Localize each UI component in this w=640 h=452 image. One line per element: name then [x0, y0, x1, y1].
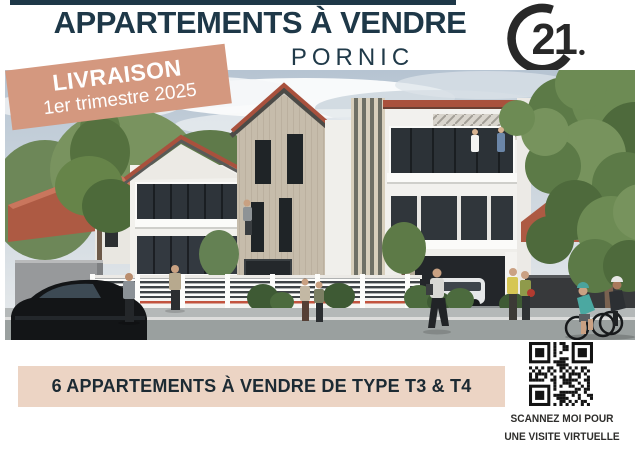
page-title: APPARTEMENTS À VENDRE [25, 5, 495, 41]
qr-caption-line2: UNE VISITE VIRTUELLE [503, 429, 621, 447]
real-estate-flyer: APPARTEMENTS À VENDRE PORNIC 21 LIVRAISO… [0, 0, 640, 452]
city-subtitle: PORNIC [240, 44, 465, 72]
offer-text: 6 APPARTEMENTS À VENDRE DE TYPE T3 & T4 [52, 376, 472, 397]
qr-code-icon [529, 342, 593, 406]
century21-logo: 21 [500, 2, 608, 74]
qr-caption: SCANNEZ MOI POUR UNE VISITE VIRTUELLE [503, 411, 621, 446]
svg-text:21: 21 [532, 16, 577, 64]
bottom-offer-strip: 6 APPARTEMENTS À VENDRE DE TYPE T3 & T4 [18, 366, 505, 407]
century21-logo-icon: 21 [500, 2, 608, 74]
qr-caption-line1: SCANNEZ MOI POUR [503, 411, 621, 429]
qr-code [529, 342, 593, 406]
